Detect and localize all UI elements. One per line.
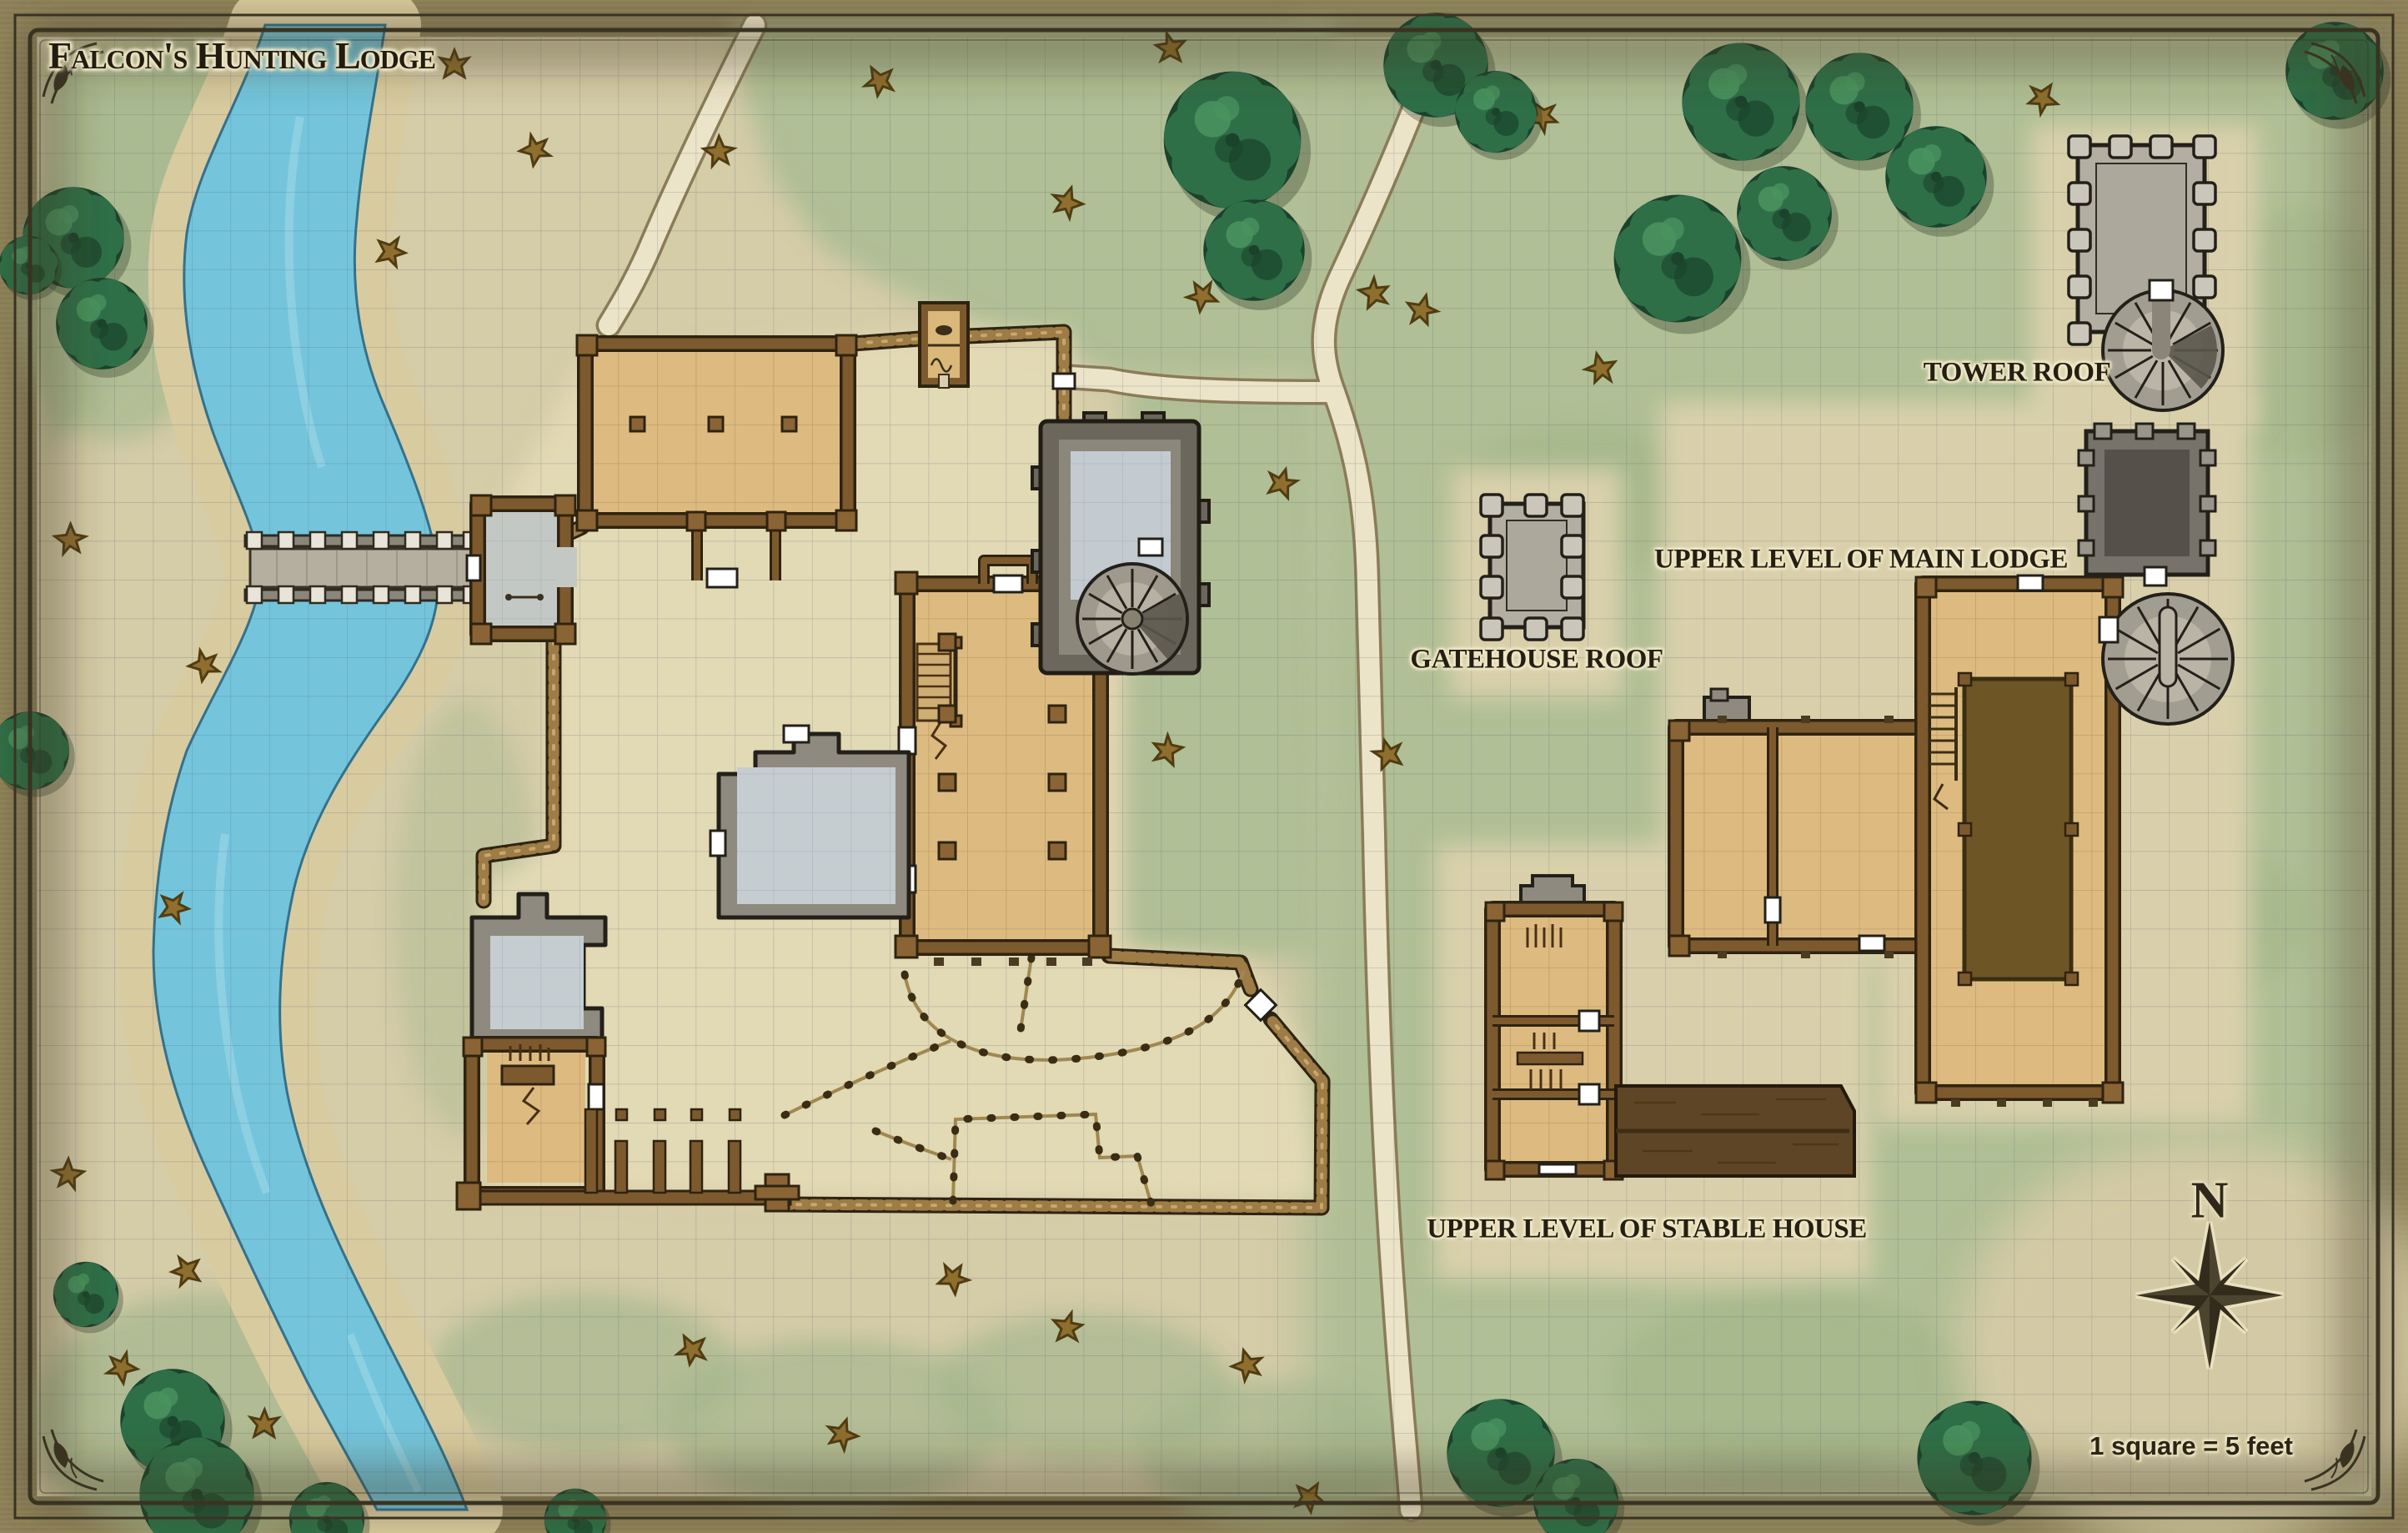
- stone-tower: [1032, 413, 1209, 674]
- hall-north-door: [994, 576, 1022, 592]
- bridge-room-west-door: [467, 555, 480, 581]
- map-canvas: [0, 0, 2408, 1533]
- tower-door: [1139, 539, 1162, 555]
- upper-tower-door-2: [2099, 617, 2118, 642]
- gatehouse-roof-inset: [1481, 495, 1583, 640]
- bridge-gatehouse-room: [467, 495, 577, 644]
- sw-building-east-door: [589, 1084, 604, 1109]
- upper-lodge-south-door: [1859, 936, 1884, 951]
- palisade-north-door: [1053, 374, 1075, 389]
- tower-spiral-stairs: [1077, 564, 1187, 674]
- west-wing-west-door: [710, 831, 725, 856]
- north-lodge-door: [707, 569, 737, 587]
- battle-map: Falcon's Hunting Lodge TOWER ROOFUPPER L…: [0, 0, 2408, 1533]
- hall-west-door-1: [899, 727, 916, 754]
- gatehouse-building: [920, 303, 968, 388]
- upper-stable-door-1: [1579, 1011, 1599, 1031]
- tower-roof-door: [2150, 280, 2173, 300]
- upper-stable-south-door: [1539, 1164, 1576, 1174]
- stable-roof: [1616, 1086, 1854, 1176]
- bridge: [245, 532, 480, 603]
- upper-lodge-inner-door-1: [1765, 897, 1780, 922]
- upper-lodge-north-door: [2018, 576, 2043, 591]
- upper-tower-door-1: [2145, 567, 2166, 586]
- upper-stable-door-2: [1579, 1084, 1599, 1104]
- upper-lodge-balcony-opening: [1959, 673, 2078, 985]
- west-wing-north-door: [784, 726, 809, 742]
